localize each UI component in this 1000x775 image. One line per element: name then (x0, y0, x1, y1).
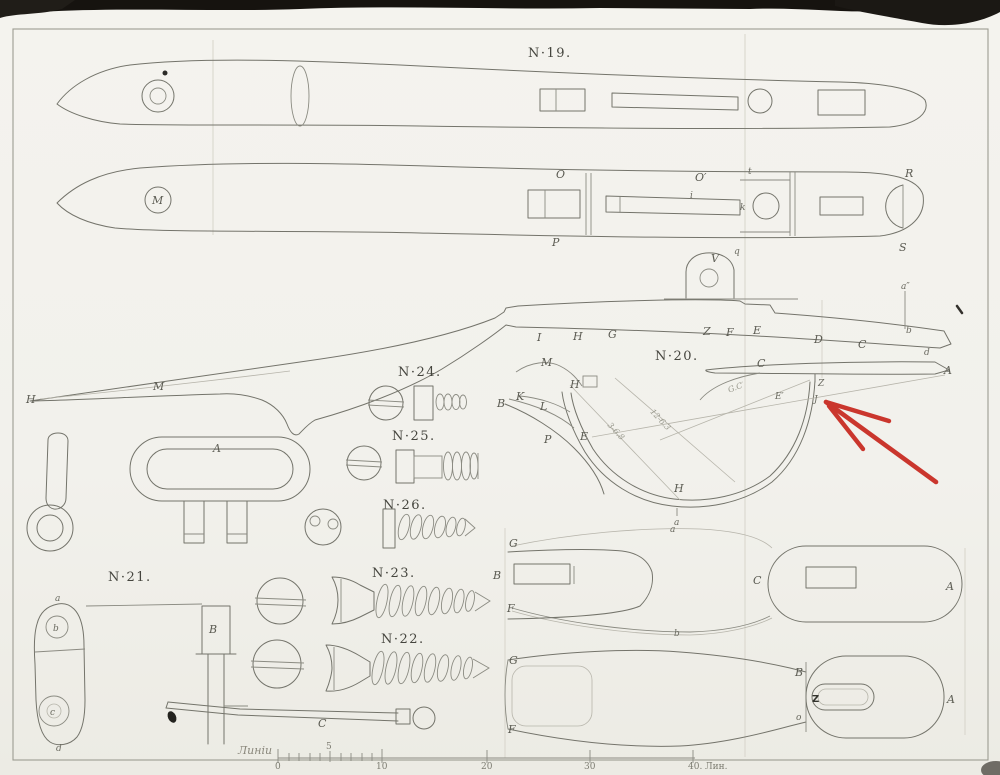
label-plate-b: b (53, 624, 59, 634)
label-a-mark: a″ (901, 282, 910, 292)
label-o: O (556, 168, 565, 181)
label-q: q (734, 247, 740, 257)
label-guard-e-prime: E′ (774, 392, 784, 402)
label-k: k (740, 203, 745, 213)
label-h-profile: H (572, 330, 583, 343)
scale-0: 0 (275, 762, 281, 772)
label-spring-a-end: A (945, 580, 954, 593)
label-f-profile: F (725, 326, 734, 339)
label-b-mark: b (906, 326, 912, 336)
title-n19: N·19. (528, 46, 572, 61)
label-spring-g: G (509, 537, 518, 550)
label-t: t (748, 167, 752, 177)
label-h-tip: H (25, 393, 36, 406)
label-d-profile: D (813, 333, 823, 346)
label-plate-a: a (55, 594, 60, 604)
label-spring-a-top: a (670, 525, 675, 535)
label-v: V (711, 252, 720, 265)
label-d-mark: d (924, 348, 930, 358)
scanned-plate-page: Лист. 4. N·19. M O O′ P i k (0, 0, 1000, 775)
label-i-profile: I (536, 331, 542, 344)
label-lower-g: G (509, 654, 518, 667)
title-n24: N·24. (398, 365, 442, 380)
label-lower-a: A (946, 693, 955, 706)
scale-5: 5 (326, 742, 332, 752)
label-rod-c: C (318, 717, 327, 730)
engraving-plate: Лист. 4. N·19. M O O′ P i k (0, 0, 1000, 775)
label-guard-l: L (539, 400, 547, 413)
label-g-profile: G (608, 328, 617, 341)
scale-30: 30 (584, 762, 596, 772)
label-spring-f: F (506, 602, 515, 615)
label-p: P (551, 236, 560, 249)
label-lower-f: F (507, 723, 516, 736)
label-e-profile: E (752, 324, 761, 337)
title-n22: N·22. (381, 632, 425, 647)
title-n21: N·21. (108, 570, 152, 585)
label-guard-h-top: H (569, 378, 580, 391)
label-guard-m: M (540, 356, 553, 369)
title-n26: N·26. (383, 498, 427, 513)
label-guard-h-bottom: H (673, 482, 684, 495)
scale-10: 10 (376, 762, 388, 772)
label-r: R (904, 167, 913, 180)
label-lower-b: B (794, 666, 803, 679)
label-spring-b-bot: b (674, 629, 680, 639)
scale-40: 40. Лин. (688, 762, 728, 772)
label-guard-k: K (515, 390, 525, 403)
label-lower-z: Z (812, 694, 819, 705)
title-n23: N·23. (372, 566, 416, 581)
label-s: S (899, 241, 907, 254)
label-guard-b: B (496, 397, 505, 410)
title-n20: N·20. (655, 349, 699, 364)
label-bar-b: B (208, 623, 217, 636)
label-plate-d: d (56, 744, 62, 754)
label-o-prime: O′ (695, 171, 707, 184)
label-guard-e: E (579, 430, 588, 443)
label-guard-z: Z (817, 379, 825, 389)
label-lower-o: o (796, 713, 802, 723)
label-spring-c: C (753, 574, 762, 587)
label-m-profile: M (152, 380, 165, 393)
scale-caption: Линіи (237, 744, 272, 757)
label-guard-p: P (543, 433, 552, 446)
label-z-profile: Z (702, 325, 711, 338)
title-n25: N·25. (392, 429, 436, 444)
label-c-profile: C (858, 338, 867, 351)
label-spring-b: B (492, 569, 501, 582)
label-guard-c: C (757, 357, 766, 370)
label-guard-a: A (943, 364, 952, 377)
label-plate-c: c (50, 708, 55, 718)
label-i: i (690, 191, 693, 201)
scale-20: 20 (481, 762, 493, 772)
label-m-circle: M (151, 194, 164, 207)
label-bow-a: A (212, 442, 221, 455)
ink-speck (163, 71, 168, 76)
